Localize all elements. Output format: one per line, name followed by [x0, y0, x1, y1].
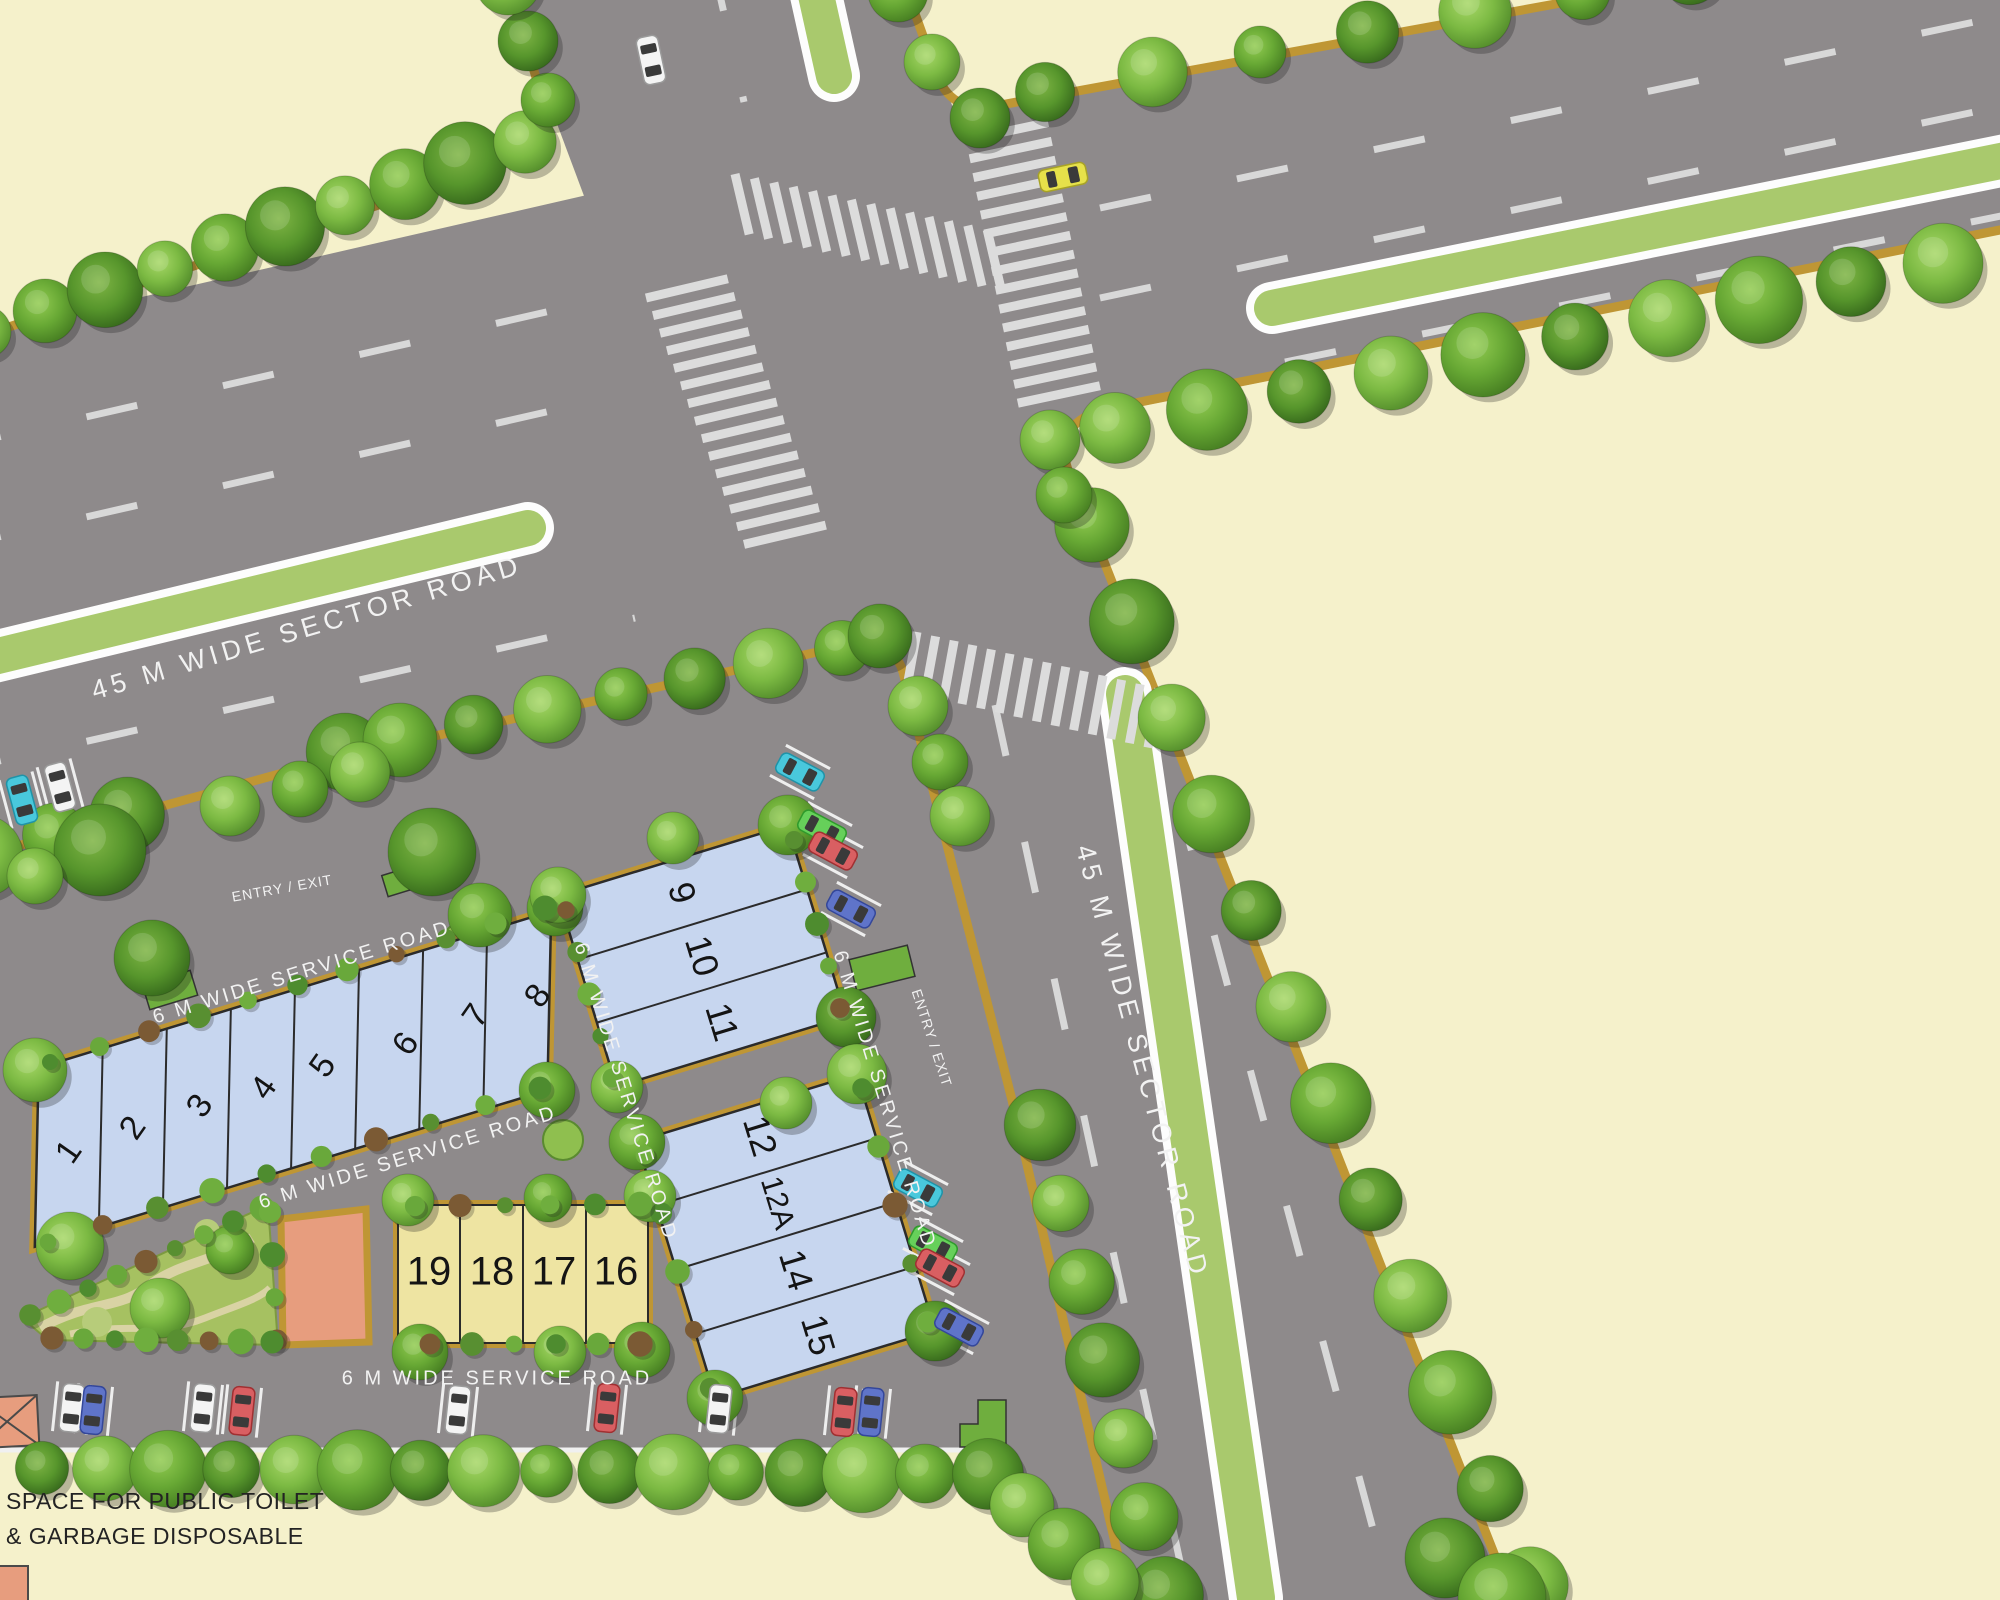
orange-plot — [281, 1209, 369, 1345]
public-toilet-note: SPACE FOR PUBLIC TOILET & GARBAGE DISPOS… — [6, 1484, 324, 1553]
orange-plot-corner — [0, 1566, 28, 1600]
plot-label-17: 17 — [532, 1250, 577, 1295]
note-line-1: SPACE FOR PUBLIC TOILET — [6, 1484, 324, 1519]
site-plan-map: 45 M WIDE SECTOR ROAD 45 M WIDE SECTOR R… — [0, 0, 2000, 1600]
road-label-service-5: 6 M WIDE SERVICE ROAD — [342, 1368, 652, 1391]
plot-label-16: 16 — [594, 1250, 639, 1295]
note-line-2: & GARBAGE DISPOSABLE — [6, 1519, 324, 1554]
base-map-graphics — [0, 0, 2000, 1600]
plot-label-19: 19 — [407, 1250, 452, 1295]
plot-label-18: 18 — [470, 1250, 515, 1295]
public-toilet-plot — [0, 1395, 39, 1448]
